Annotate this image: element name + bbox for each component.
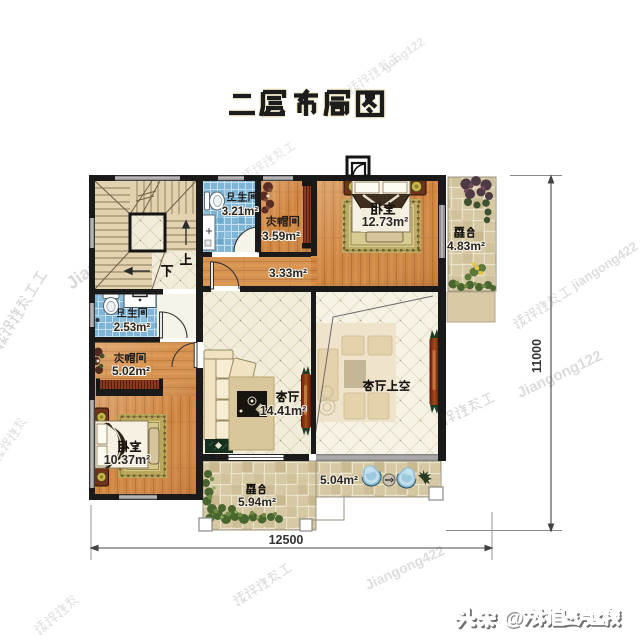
svg-text:12.73m²: 12.73m² [362, 215, 409, 229]
svg-text:5.04m²: 5.04m² [320, 473, 358, 487]
svg-text:10.37m²: 10.37m² [104, 453, 151, 467]
svg-text:@: @ [504, 608, 524, 630]
svg-text:3.21m²: 3.21m² [222, 206, 259, 218]
svg-text:4.83m²: 4.83m² [447, 239, 485, 253]
svg-text:14.41m²: 14.41m² [260, 404, 307, 418]
svg-text:3.59m²: 3.59m² [262, 229, 300, 243]
svg-text:2.53m²: 2.53m² [114, 322, 151, 334]
svg-text:12500: 12500 [269, 533, 304, 547]
svg-text:5.94m²: 5.94m² [238, 495, 276, 509]
svg-text:5.02m²: 5.02m² [112, 364, 150, 378]
svg-text:3.33m²: 3.33m² [269, 266, 307, 280]
svg-text:11000: 11000 [530, 339, 544, 373]
